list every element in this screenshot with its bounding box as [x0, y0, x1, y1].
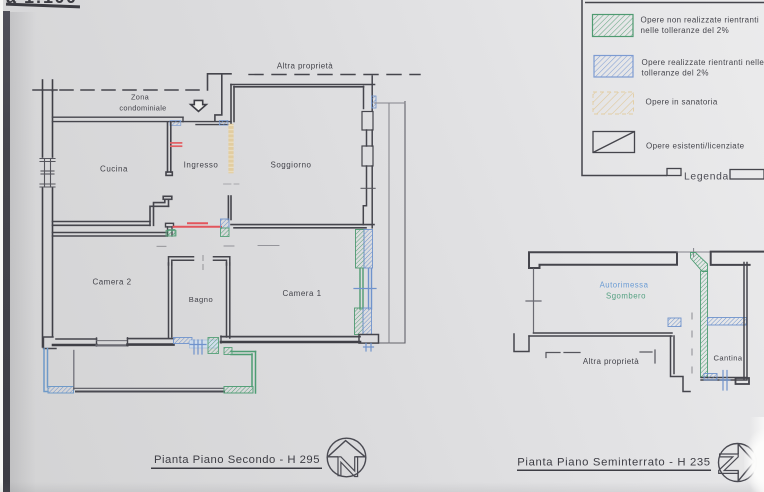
svg-text:Opere in sanatoria: Opere in sanatoria — [646, 98, 718, 107]
svg-text:nelle tolleranze del 2%: nelle tolleranze del 2% — [641, 26, 730, 35]
svg-text:Altra proprietà: Altra proprietà — [277, 62, 333, 71]
svg-text:Pianta Piano Secondo - H 295: Pianta Piano Secondo - H 295 — [154, 454, 320, 466]
svg-text:Opere esistenti/licenziate: Opere esistenti/licenziate — [646, 142, 745, 151]
svg-text:tolleranze del 2%: tolleranze del 2% — [642, 69, 709, 78]
svg-text:Soggiorno: Soggiorno — [271, 161, 312, 170]
svg-text:Autorimessa: Autorimessa — [600, 281, 649, 290]
svg-text:Camera 2: Camera 2 — [92, 278, 131, 287]
svg-text:Legenda: Legenda — [684, 172, 729, 183]
svg-text:Cantina: Cantina — [714, 354, 743, 363]
svg-text:Altra proprietà: Altra proprietà — [583, 357, 639, 366]
svg-text:Bagno: Bagno — [189, 295, 213, 304]
svg-text:Opere realizzate rientranti ne: Opere realizzate rientranti nelle — [642, 58, 764, 67]
svg-text:Cucina: Cucina — [100, 165, 128, 174]
svg-text:Ingresso: Ingresso — [184, 161, 219, 170]
svg-text:Zona: Zona — [131, 93, 150, 102]
svg-text:Camera 1: Camera 1 — [282, 289, 321, 298]
svg-text:Pianta Piano Seminterrato - H: Pianta Piano Seminterrato - H 235 — [517, 457, 711, 469]
svg-text:condominiale: condominiale — [119, 104, 166, 113]
svg-text:Sgombero: Sgombero — [606, 292, 646, 301]
svg-text:Opere non realizzate rientrant: Opere non realizzate rientranti — [641, 16, 759, 25]
